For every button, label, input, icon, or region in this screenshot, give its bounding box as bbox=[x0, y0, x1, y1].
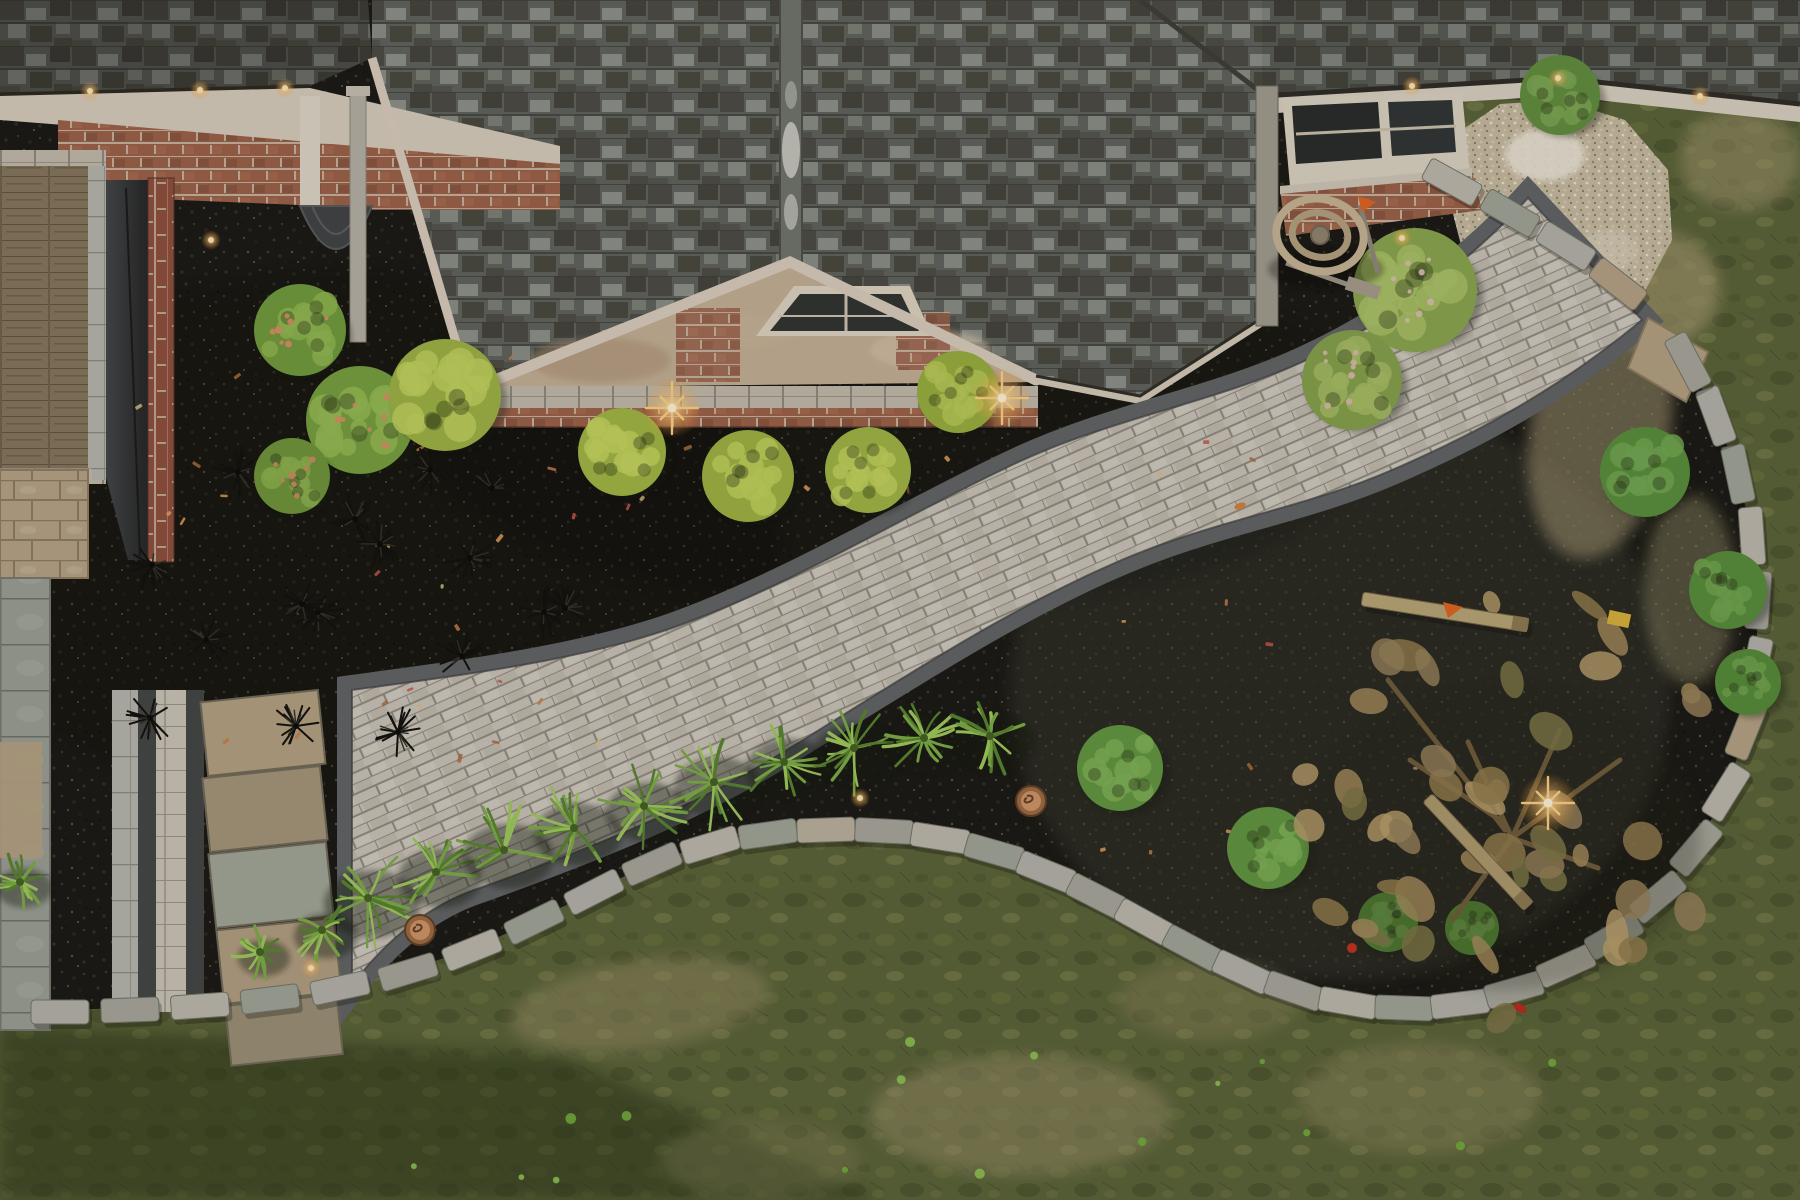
scene-canvas bbox=[0, 0, 1800, 1200]
aerial-photo-landscaping bbox=[0, 0, 1800, 1200]
tone-overlay bbox=[0, 0, 1800, 1200]
